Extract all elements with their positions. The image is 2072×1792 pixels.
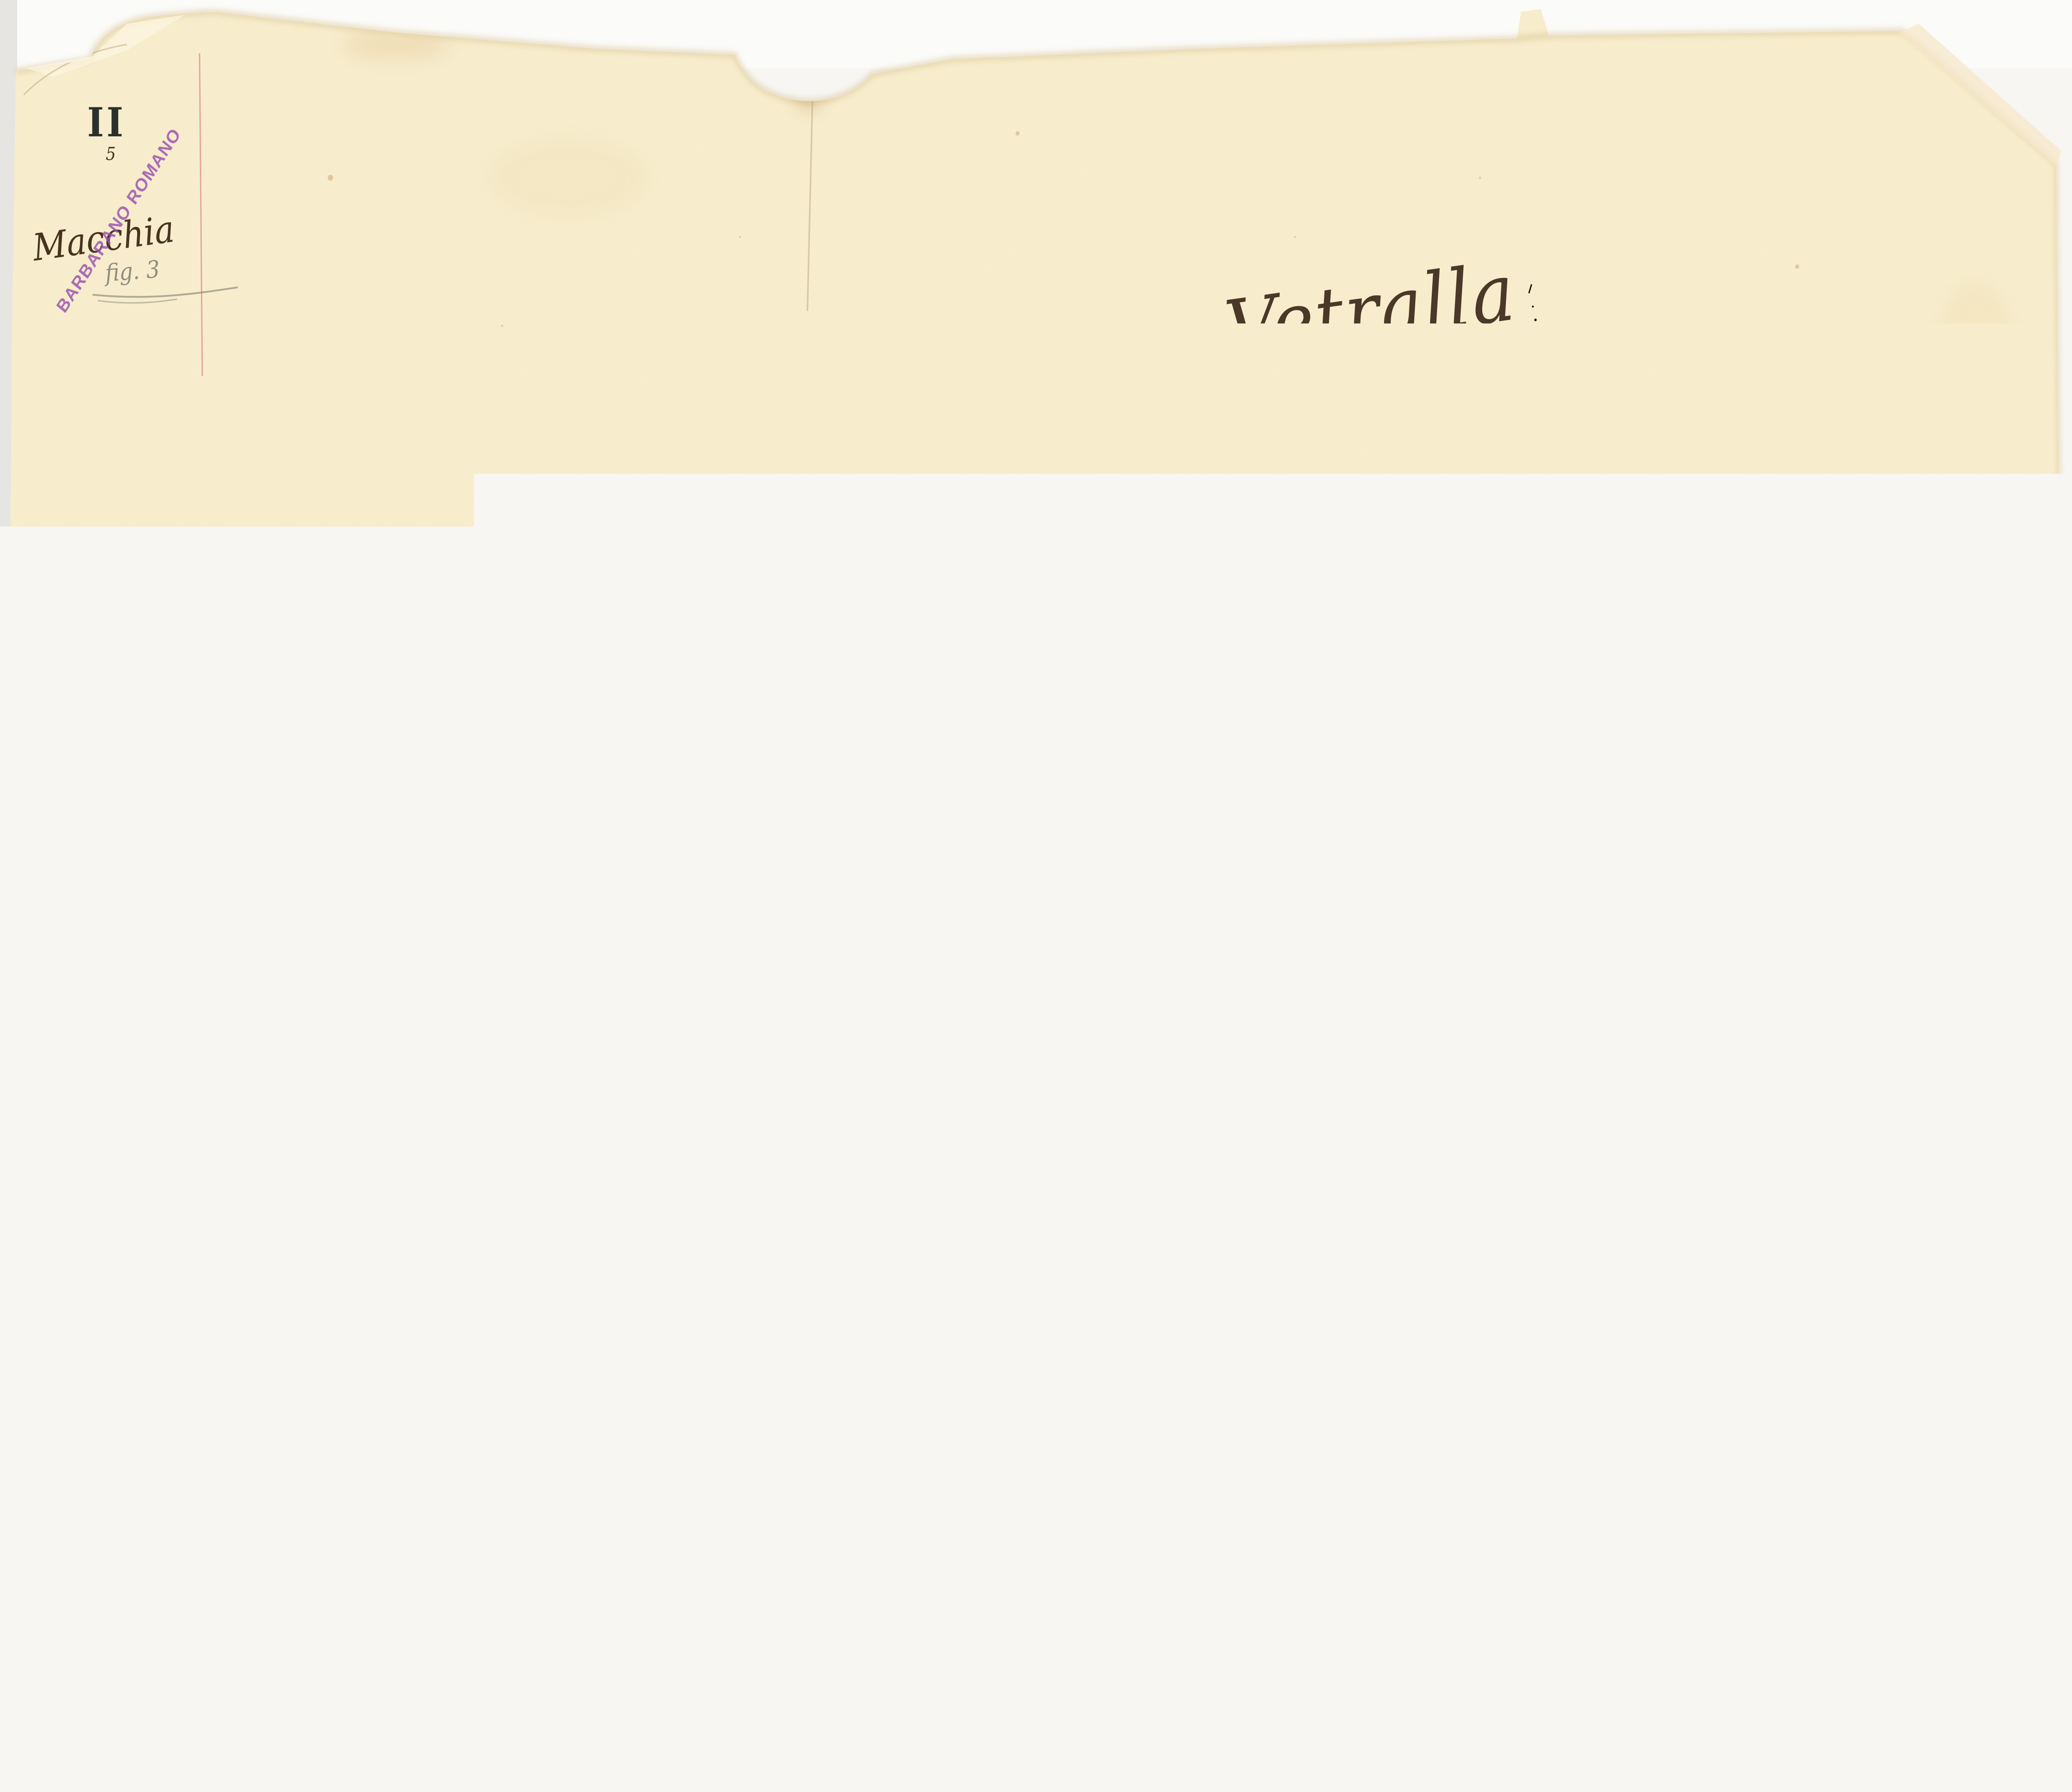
junction-letter: T [1549,490,1559,507]
parcel-number: 14. [945,1199,971,1222]
sheet-subnumber: 5 [106,143,116,165]
parcel-number: 15. [1650,911,1676,935]
parcel-number: 16. [1891,1334,1917,1356]
title-word-di: di [845,371,914,460]
parcel-number: 7. [272,591,285,608]
map-canvas: II 5 Macchia BARBARANO ROMANO fig. 3 Sez… [0,0,2072,1792]
parcel-number: 12. [1430,666,1455,688]
parcel-number: 25. [1875,908,1901,930]
parcel-number: 6. [401,1145,418,1167]
sheet-number: II [87,99,126,146]
scanned-map-page: II 5 Macchia BARBARANO ROMANO fig. 3 Sez… [0,0,2072,1792]
parcel-number: 26. [1573,684,1600,706]
svg-text:fig. 3: fig. 3 [103,255,160,287]
